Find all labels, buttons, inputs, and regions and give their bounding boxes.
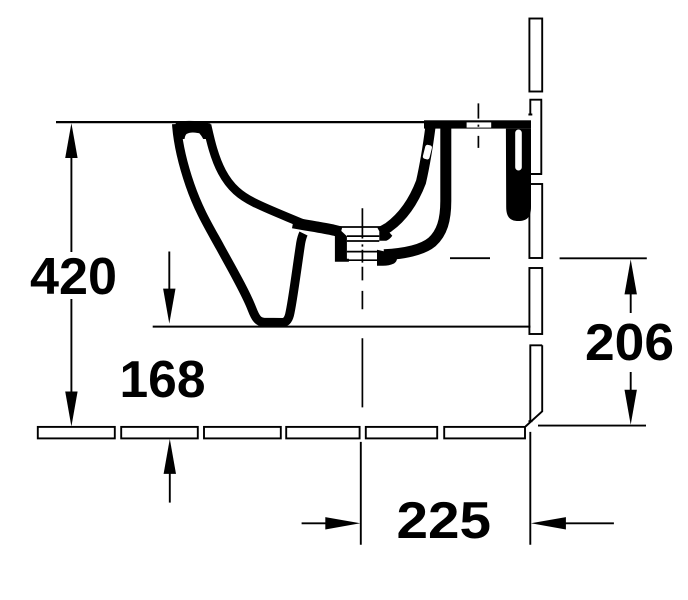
svg-text:206: 206 xyxy=(585,314,674,372)
svg-text:168: 168 xyxy=(120,351,206,409)
svg-text:420: 420 xyxy=(30,248,117,306)
svg-text:225: 225 xyxy=(397,492,492,550)
